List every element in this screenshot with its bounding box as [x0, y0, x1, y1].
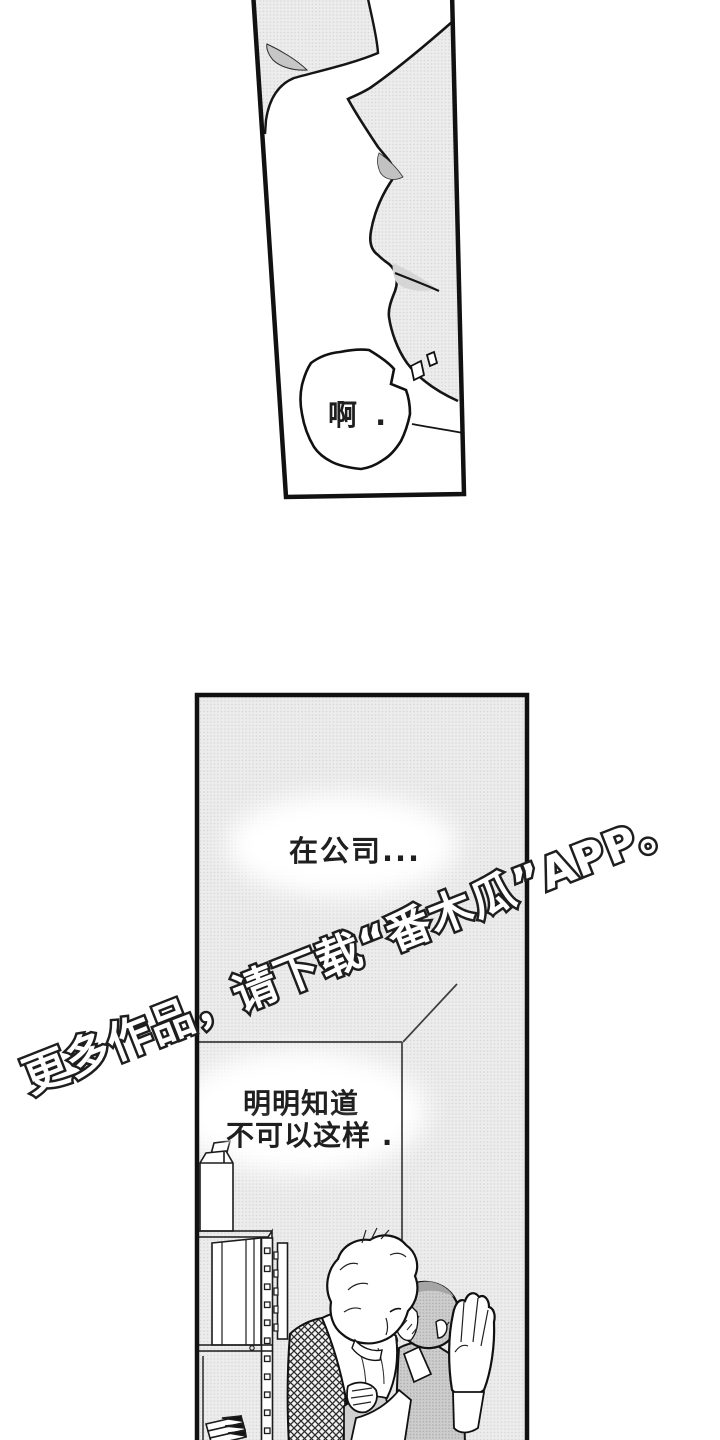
narration-at-company: 在公司...: [289, 828, 421, 870]
shelf-back-rail: [278, 1243, 288, 1339]
speech-bubble-text: 啊 .: [328, 392, 390, 434]
bubble-tail-2: [427, 352, 437, 366]
raised-hand: [449, 1293, 495, 1396]
manga-artwork: [0, 0, 720, 1440]
narration-knowing-line2: 不可以这样 .: [226, 1114, 393, 1154]
manga-page: 啊 . 在公司... 明明知道 不可以这样 . 更多作品，请下载“番木瓜”APP…: [0, 0, 720, 1440]
bottom-panel: [177, 695, 527, 1440]
